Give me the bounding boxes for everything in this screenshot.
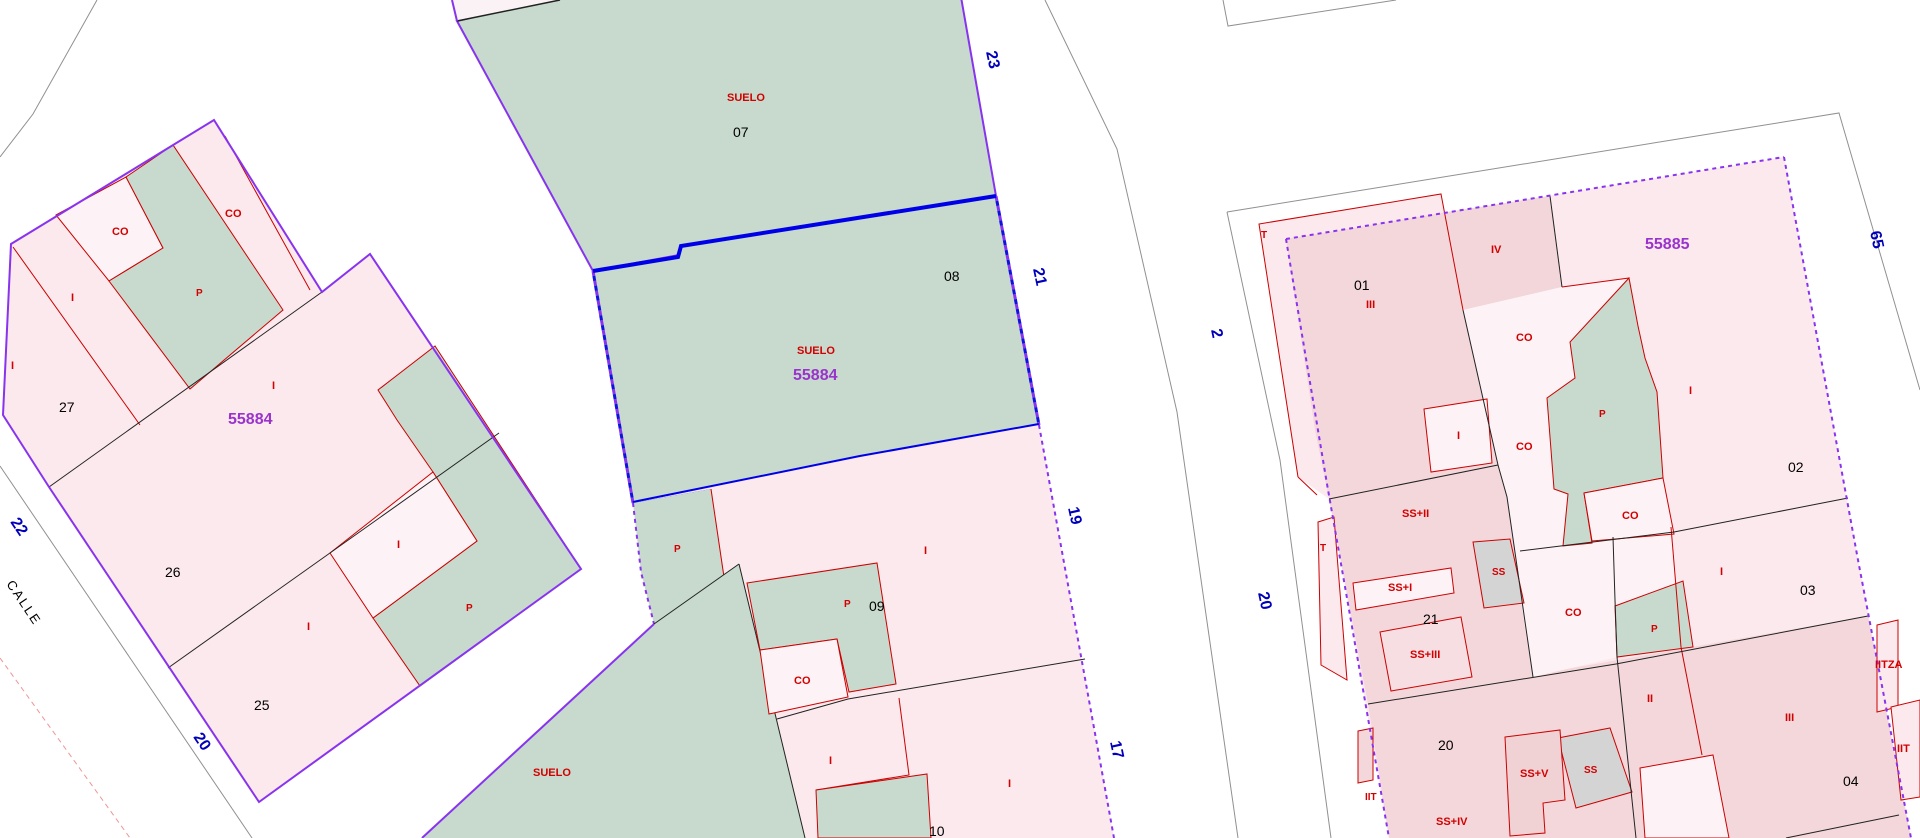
svg-text:04: 04 bbox=[1843, 773, 1859, 789]
svg-text:CO: CO bbox=[112, 226, 129, 238]
svg-text:P: P bbox=[674, 544, 681, 555]
svg-text:10: 10 bbox=[929, 823, 945, 838]
svg-text:26: 26 bbox=[165, 564, 181, 580]
svg-text:21: 21 bbox=[1029, 266, 1049, 287]
svg-text:I: I bbox=[829, 755, 832, 767]
svg-text:I: I bbox=[272, 380, 275, 392]
svg-text:I: I bbox=[307, 621, 310, 633]
svg-text:P: P bbox=[1599, 409, 1606, 420]
svg-text:I: I bbox=[71, 292, 74, 304]
svg-text:IV: IV bbox=[1491, 244, 1502, 256]
svg-text:01: 01 bbox=[1354, 277, 1370, 293]
svg-text:P: P bbox=[844, 599, 851, 610]
svg-text:IIT: IIT bbox=[1897, 743, 1910, 755]
svg-text:CO: CO bbox=[1622, 510, 1639, 522]
svg-text:III: III bbox=[1785, 712, 1794, 724]
svg-text:03: 03 bbox=[1800, 582, 1816, 598]
svg-text:SUELO: SUELO bbox=[533, 767, 571, 779]
svg-text:I: I bbox=[1720, 566, 1723, 578]
svg-text:I: I bbox=[11, 360, 14, 372]
svg-text:17: 17 bbox=[1106, 739, 1126, 760]
svg-text:T: T bbox=[1320, 543, 1326, 554]
svg-text:02: 02 bbox=[1788, 459, 1804, 475]
svg-text:P: P bbox=[466, 603, 473, 614]
svg-text:SS+III: SS+III bbox=[1410, 649, 1440, 661]
svg-text:CO: CO bbox=[1565, 607, 1582, 619]
svg-text:09: 09 bbox=[869, 598, 885, 614]
svg-text:III: III bbox=[1366, 299, 1375, 311]
svg-text:P: P bbox=[1651, 624, 1658, 635]
svg-text:P: P bbox=[196, 288, 203, 299]
svg-text:65: 65 bbox=[1866, 229, 1886, 250]
svg-text:21: 21 bbox=[1423, 611, 1439, 627]
svg-text:25: 25 bbox=[254, 697, 270, 713]
svg-text:20: 20 bbox=[1438, 737, 1454, 753]
svg-text:55884: 55884 bbox=[793, 367, 838, 384]
svg-text:IIT: IIT bbox=[1365, 792, 1377, 803]
svg-text:T: T bbox=[1261, 230, 1267, 241]
svg-text:I: I bbox=[1008, 778, 1011, 790]
svg-text:SS+IV: SS+IV bbox=[1436, 816, 1468, 828]
svg-text:CO: CO bbox=[794, 675, 811, 687]
svg-text:CO: CO bbox=[1516, 441, 1533, 453]
svg-text:II: II bbox=[1647, 693, 1653, 705]
svg-text:I: I bbox=[1689, 385, 1692, 397]
svg-text:19: 19 bbox=[1064, 505, 1084, 526]
svg-text:08: 08 bbox=[944, 268, 960, 284]
svg-text:55884: 55884 bbox=[228, 411, 273, 428]
svg-text:23: 23 bbox=[982, 49, 1002, 70]
svg-text:SS+V: SS+V bbox=[1520, 768, 1549, 780]
svg-text:I: I bbox=[1457, 430, 1460, 442]
svg-text:IITZA: IITZA bbox=[1875, 659, 1903, 671]
svg-text:SS: SS bbox=[1492, 567, 1506, 578]
svg-text:SS: SS bbox=[1584, 765, 1598, 776]
svg-text:CO: CO bbox=[1516, 332, 1533, 344]
svg-text:I: I bbox=[924, 545, 927, 557]
svg-text:07: 07 bbox=[733, 124, 749, 140]
svg-text:20: 20 bbox=[1254, 590, 1274, 611]
svg-text:SUELO: SUELO bbox=[727, 92, 765, 104]
svg-text:SS+II: SS+II bbox=[1402, 508, 1429, 520]
svg-text:27: 27 bbox=[59, 399, 75, 415]
svg-text:I: I bbox=[397, 539, 400, 551]
svg-text:55885: 55885 bbox=[1645, 236, 1690, 253]
svg-text:CO: CO bbox=[225, 208, 242, 220]
svg-text:SS+I: SS+I bbox=[1388, 582, 1412, 594]
svg-text:SUELO: SUELO bbox=[797, 345, 835, 357]
